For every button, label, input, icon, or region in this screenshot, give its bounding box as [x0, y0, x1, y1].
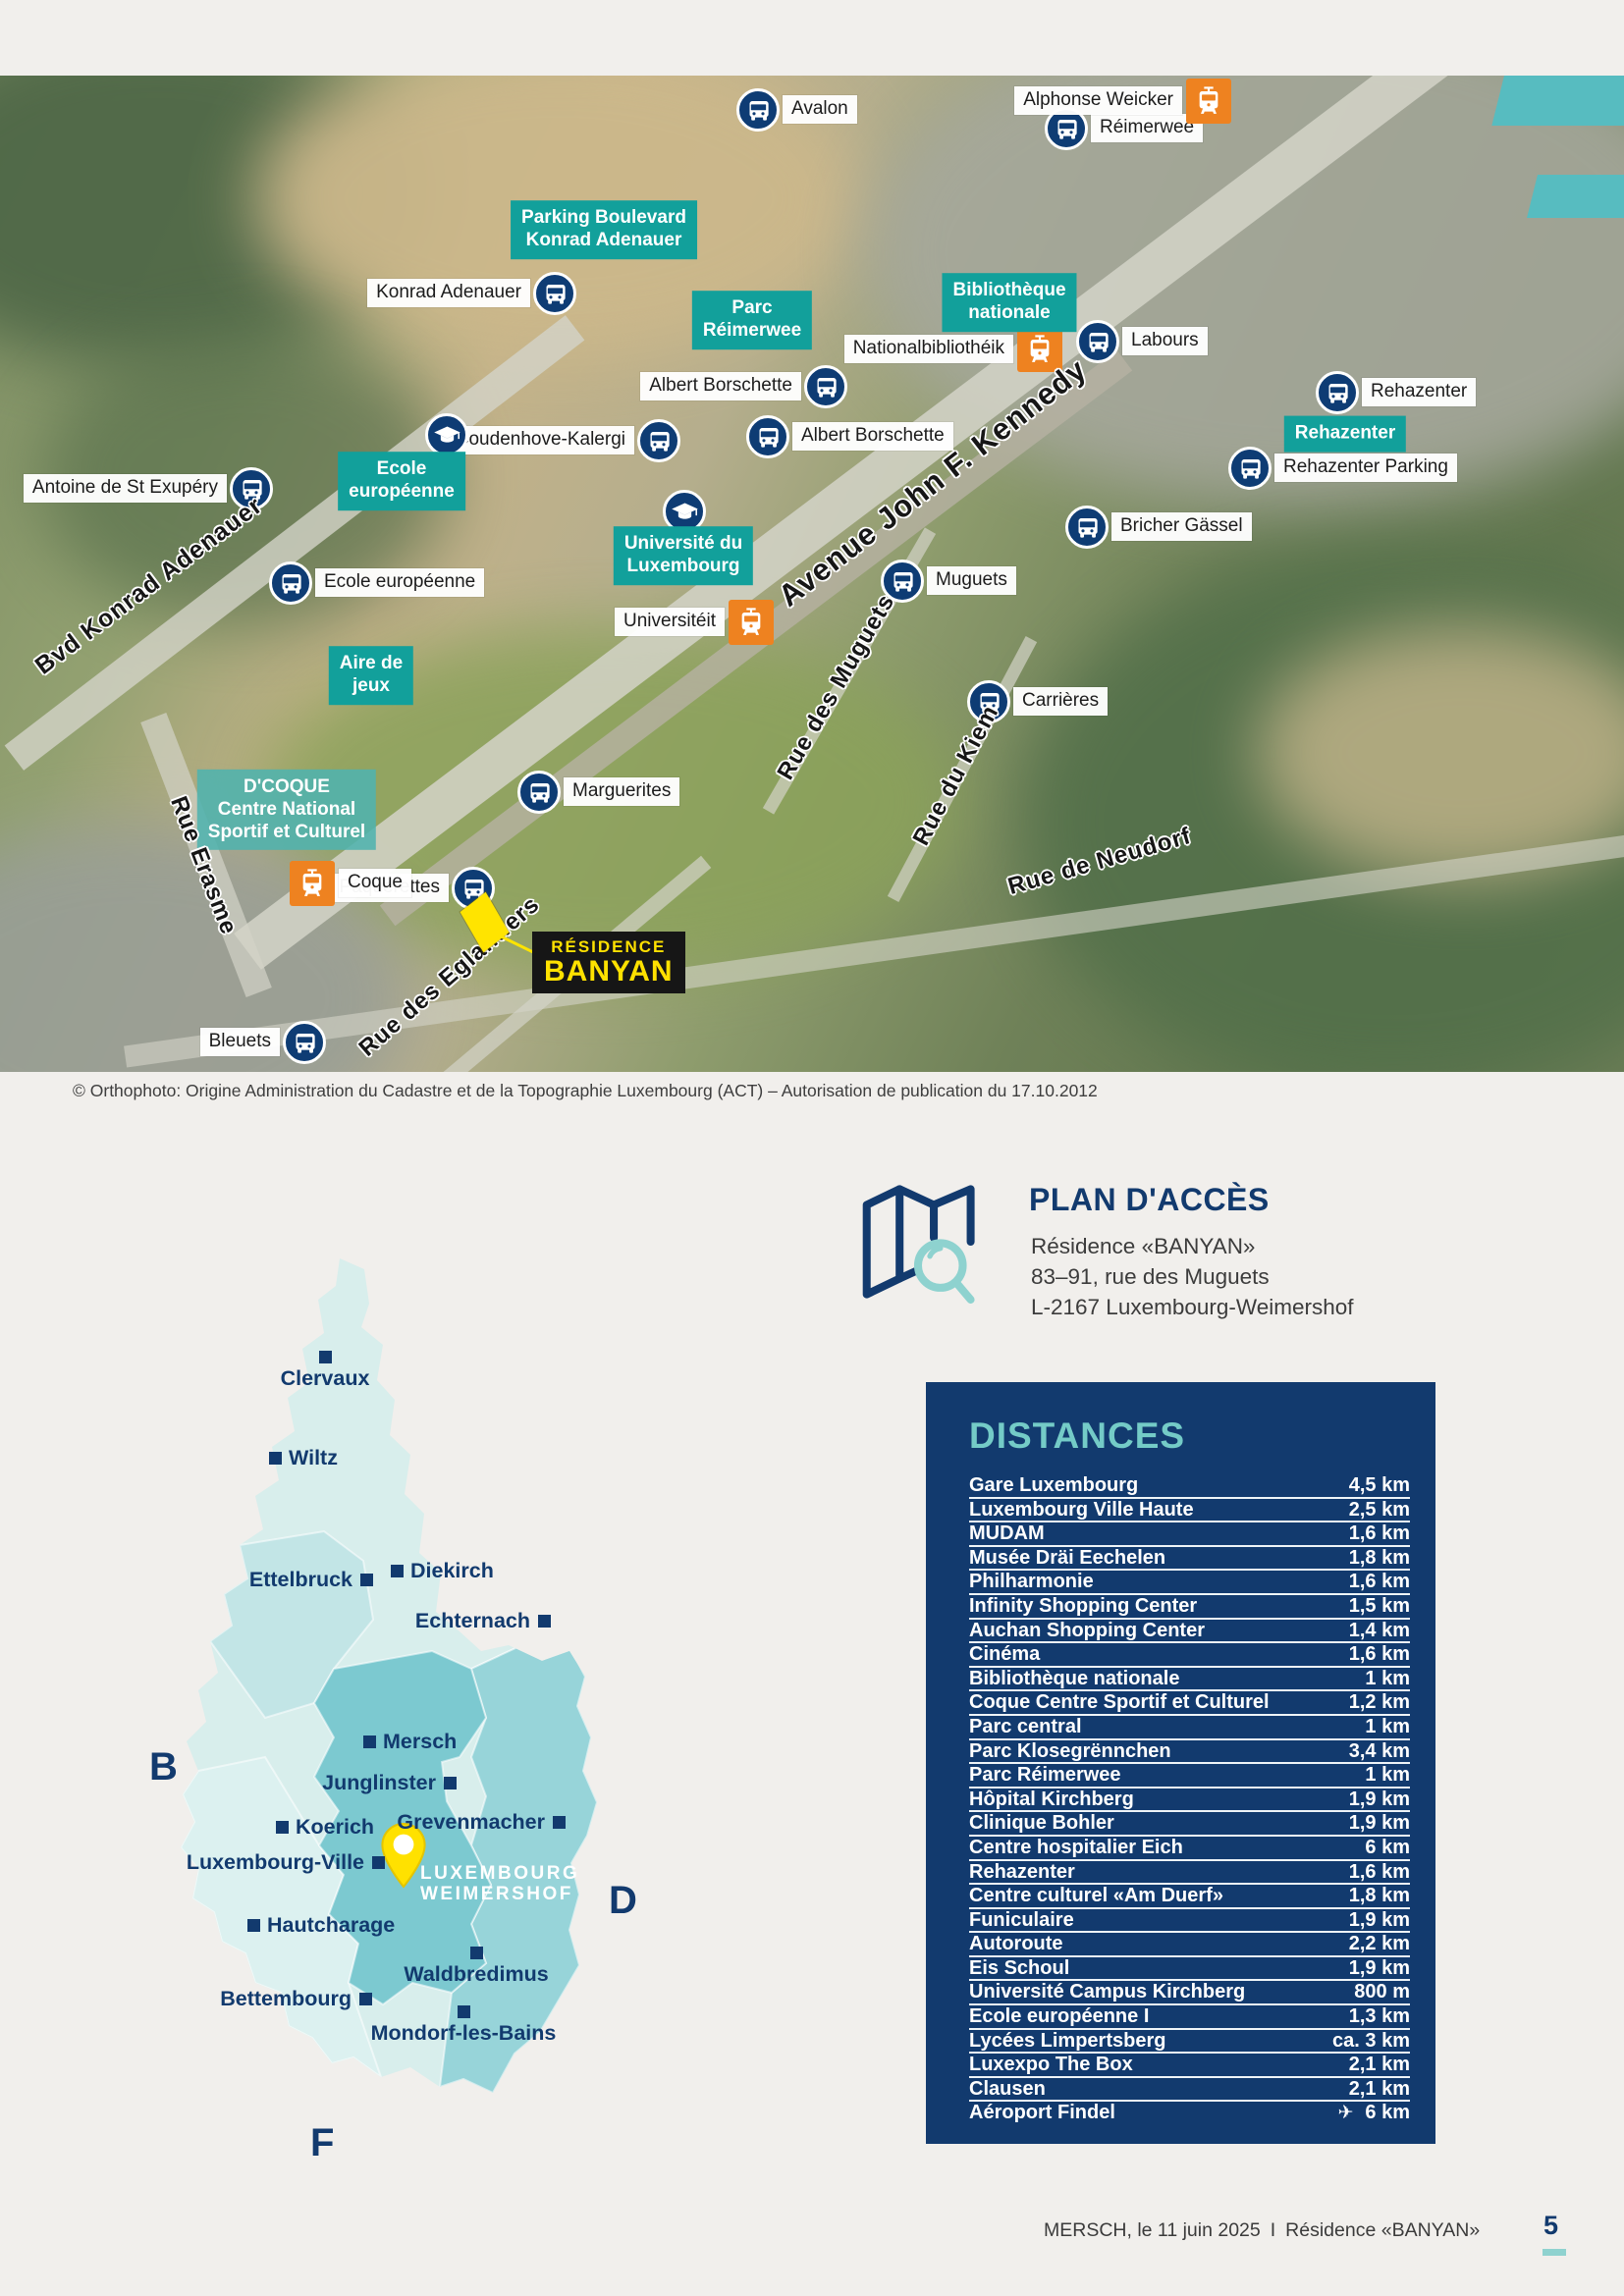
distance-name: Université Campus Kirchberg [969, 1981, 1245, 2003]
distance-row: Funiculaire1,9 km [969, 1909, 1410, 1934]
city-label: Mondorf-les-Bains [371, 2020, 557, 2046]
neighbor-country-letter: B [149, 1745, 178, 1789]
bus-stop-label: Marguerites [564, 777, 679, 806]
address-line-residence: Résidence «BANYAN» [1031, 1231, 1354, 1261]
distance-row: Autoroute2,2 km [969, 1933, 1410, 1957]
edge-decoration-bar [1527, 175, 1624, 218]
distance-name: Parc Klosegrënnchen [969, 1740, 1171, 1763]
distance-value: 4,5 km [1349, 1474, 1410, 1497]
distance-name: Hôpital Kirchberg [969, 1789, 1134, 1811]
distance-row: Lycées Limpertsbergca. 3 km [969, 2030, 1410, 2055]
distance-row: Parc Réimerwee1 km [969, 1764, 1410, 1789]
distance-value: 1,9 km [1349, 1909, 1410, 1932]
city-square-marker [553, 1816, 566, 1829]
distance-name: Philharmonie [969, 1571, 1094, 1593]
distance-value: 1,3 km [1349, 2005, 1410, 2028]
bus-stop-label: Labours [1122, 327, 1208, 355]
distance-row: Auchan Shopping Center1,4 km [969, 1620, 1410, 1644]
city-square-marker [319, 1351, 332, 1363]
folded-map-icon [856, 1176, 988, 1312]
city-square-marker [538, 1615, 551, 1628]
map-info-box: Ecoleeuropéenne [338, 452, 465, 510]
distance-name: Bibliothèque nationale [969, 1668, 1179, 1690]
distance-name: Parc central [969, 1716, 1082, 1738]
distances-title: DISTANCES [969, 1415, 1435, 1457]
distance-row: Université Campus Kirchberg800 m [969, 1981, 1410, 2005]
country-map-overlay: LUXEMBOURG WEIMERSHOF ClervauxWiltzEttel… [147, 1207, 825, 2218]
distance-row: Hôpital Kirchberg1,9 km [969, 1789, 1410, 1813]
bus-stop-icon [746, 415, 789, 458]
bus-stop-label: Konrad Adenauer [367, 279, 530, 307]
distance-row: Rehazenter1,6 km [969, 1861, 1410, 1886]
distance-row: Clinique Bohler1,9 km [969, 1812, 1410, 1837]
city-square-marker [470, 1947, 483, 1959]
city-square-marker [458, 2005, 470, 2018]
neighbor-country-letter: F [310, 2121, 334, 2165]
orthophoto-caption: © Orthophoto: Origine Administration du … [73, 1081, 1098, 1101]
city-square-marker [276, 1821, 289, 1834]
distance-value: 1,9 km [1349, 1957, 1410, 1980]
footer-date: MERSCH, le 11 juin 2025 [1044, 2219, 1261, 2241]
distance-name: Rehazenter [969, 1861, 1075, 1884]
distance-value: 1 km [1365, 1716, 1410, 1738]
street-name-label: Bvd Konrad Adenauer [30, 492, 269, 681]
map-info-box: Parking BoulevardKonrad Adenauer [511, 200, 697, 259]
tram-stop-label: Coque [339, 869, 411, 897]
bus-stop-label: Albert Borschette [792, 422, 953, 451]
brochure-page: AvalonRéimerweeKonrad AdenauerLaboursReh… [0, 0, 1624, 2296]
distance-value: 1,2 km [1349, 1691, 1410, 1714]
city-label: Waldbredimus [404, 1961, 548, 1987]
distance-row: Infinity Shopping Center1,5 km [969, 1595, 1410, 1620]
airplane-icon: ✈ [1337, 2102, 1353, 2124]
bus-stop-icon [283, 1021, 326, 1064]
distance-row: MUDAM1,6 km [969, 1522, 1410, 1547]
bus-stop-icon [1065, 506, 1109, 549]
distance-value: 1,9 km [1349, 1789, 1410, 1811]
distance-name: Luxexpo The Box [969, 2054, 1133, 2076]
distance-value: 1,4 km [1349, 1620, 1410, 1642]
luxembourg-country-map: LUXEMBOURG WEIMERSHOF ClervauxWiltzEttel… [147, 1207, 825, 2218]
footer-title: Résidence «BANYAN» [1285, 2219, 1480, 2241]
bus-stop-label: Coudenhove-Kalergi [447, 426, 634, 454]
distance-value: 1 km [1365, 1764, 1410, 1787]
distance-value: 1,9 km [1349, 1812, 1410, 1835]
distance-value: 2,5 km [1349, 1499, 1410, 1522]
distance-value: 6 km [1365, 1837, 1410, 1859]
city-label: Diekirch [410, 1558, 494, 1583]
distance-row: Cinéma1,6 km [969, 1643, 1410, 1668]
edge-decoration-bar [1491, 76, 1624, 126]
distance-name: Lycées Limpertsberg [969, 2030, 1165, 2053]
tram-stop-label: Nationalbibliothéik [844, 335, 1013, 363]
city-square-marker [247, 1919, 260, 1932]
pin-label-line2: WEIMERSHOF [420, 1884, 579, 1904]
bus-stop-label: Bleuets [200, 1028, 280, 1056]
residence-label-name: BANYAN [544, 957, 674, 987]
distance-value: 1,8 km [1349, 1547, 1410, 1570]
page-number-underline [1543, 2249, 1566, 2256]
map-info-box: Rehazenter [1284, 416, 1406, 453]
page-number: 5 [1543, 2211, 1558, 2241]
city-label: Bettembourg [220, 1986, 352, 2011]
distance-row: Parc central1 km [969, 1716, 1410, 1740]
street-name-label: Rue du Kiem [908, 701, 1005, 850]
city-square-marker [372, 1856, 385, 1869]
distance-row: Philharmonie1,6 km [969, 1571, 1410, 1595]
distance-value: 2,1 km [1349, 2078, 1410, 2101]
map-info-box: ParcRéimerwee [692, 291, 812, 349]
residence-banyan-label: RÉSIDENCE BANYAN [532, 932, 685, 993]
city-label: Koerich [296, 1814, 374, 1840]
distance-value: 1,6 km [1349, 1861, 1410, 1884]
distance-value: ✈6 km [1337, 2102, 1410, 2124]
distance-value: 1,6 km [1349, 1643, 1410, 1666]
bus-stop-label: Antoine de St Exupéry [24, 474, 227, 503]
distance-value: 1 km [1365, 1668, 1410, 1690]
tram-stop-icon [729, 600, 774, 645]
distance-name: Autoroute [969, 1933, 1063, 1955]
distance-row: Musée Dräi Eechelen1,8 km [969, 1547, 1410, 1572]
address-line-city: L-2167 Luxembourg-Weimershof [1031, 1292, 1354, 1322]
street-name-label: Rue des Eglantiers [353, 891, 545, 1063]
distance-name: Auchan Shopping Center [969, 1620, 1205, 1642]
aerial-map: AvalonRéimerweeKonrad AdenauerLaboursReh… [0, 76, 1624, 1072]
distance-row: Gare Luxembourg4,5 km [969, 1474, 1410, 1499]
tram-stop-icon [290, 861, 335, 906]
distance-value: 2,2 km [1349, 1933, 1410, 1955]
city-square-marker [359, 1993, 372, 2005]
bus-stop-icon [1076, 320, 1119, 363]
weimershof-label: LUXEMBOURG WEIMERSHOF [420, 1863, 579, 1904]
distance-name: Centre culturel «Am Duerf» [969, 1885, 1223, 1907]
distance-name: Eis Schoul [969, 1957, 1069, 1980]
city-square-marker [363, 1735, 376, 1748]
access-address: Résidence «BANYAN» 83–91, rue des Muguet… [1031, 1231, 1354, 1322]
distance-name: Clausen [969, 2078, 1046, 2101]
bus-stop-label: Ecole européenne [315, 568, 484, 597]
distance-name: Parc Réimerwee [969, 1764, 1121, 1787]
distances-table: Gare Luxembourg4,5 kmLuxembourg Ville Ha… [926, 1474, 1435, 2126]
distance-row: Clausen2,1 km [969, 2078, 1410, 2103]
distance-value: 1,5 km [1349, 1595, 1410, 1618]
city-square-marker [444, 1777, 457, 1789]
map-info-box: Aire dejeux [329, 646, 413, 705]
map-info-box: Bibliothèquenationale [942, 273, 1076, 332]
distance-row: Bibliothèque nationale1 km [969, 1668, 1410, 1692]
distance-value: 3,4 km [1349, 1740, 1410, 1763]
distance-row: Luxembourg Ville Haute2,5 km [969, 1499, 1410, 1523]
city-label: Hautcharage [267, 1912, 395, 1938]
distance-value: 2,1 km [1349, 2054, 1410, 2076]
bus-stop-label: Avalon [783, 95, 857, 124]
city-square-marker [391, 1565, 404, 1577]
bus-stop-label: Carrières [1013, 687, 1108, 716]
distance-value: 1,8 km [1349, 1885, 1410, 1907]
tram-stop-icon [1186, 79, 1231, 124]
city-label: Mersch [383, 1729, 457, 1754]
pin-label-line1: LUXEMBOURG [420, 1863, 579, 1884]
distances-panel: DISTANCES Gare Luxembourg4,5 kmLuxembour… [926, 1382, 1435, 2144]
distance-value: 1,6 km [1349, 1522, 1410, 1545]
bus-stop-icon [1228, 447, 1272, 490]
city-square-marker [360, 1574, 373, 1586]
bus-stop-label: Bricher Gässel [1111, 512, 1252, 541]
neighbor-country-letter: D [609, 1879, 637, 1923]
city-label: Echternach [415, 1608, 530, 1633]
distance-name: MUDAM [969, 1522, 1045, 1545]
distance-row: Aéroport Findel✈6 km [969, 2102, 1410, 2126]
distance-name: Gare Luxembourg [969, 1474, 1138, 1497]
bus-stop-icon [637, 419, 680, 462]
distance-value: 1,6 km [1349, 1571, 1410, 1593]
distance-name: Clinique Bohler [969, 1812, 1114, 1835]
city-label: Junglinster [322, 1770, 436, 1795]
footer-separator: I [1271, 2219, 1275, 2241]
city-square-marker [269, 1452, 282, 1465]
distance-row: Coque Centre Sportif et Culturel1,2 km [969, 1691, 1410, 1716]
residence-label-top: RÉSIDENCE [544, 937, 674, 957]
distance-name: Ecole européenne I [969, 2005, 1149, 2028]
bus-stop-label: Muguets [927, 566, 1016, 595]
distance-row: Eis Schoul1,9 km [969, 1957, 1410, 1982]
city-label: Grevenmacher [397, 1809, 545, 1835]
map-info-box: D'COQUECentre NationalSportif et Culture… [197, 770, 376, 850]
street-name-label: Rue de Neudorf [1005, 823, 1195, 901]
distance-value: 800 m [1354, 1981, 1410, 2003]
bus-stop-icon [804, 365, 847, 408]
footer-text: MERSCH, le 11 juin 2025IRésidence «BANYA… [1044, 2219, 1480, 2242]
city-label: Ettelbruck [249, 1567, 352, 1592]
bus-stop-icon [736, 88, 780, 132]
address-line-street: 83–91, rue des Muguets [1031, 1261, 1354, 1292]
city-label: Wiltz [289, 1445, 338, 1470]
distance-name: Coque Centre Sportif et Culturel [969, 1691, 1270, 1714]
tram-stop-label: Alphonse Weicker [1014, 86, 1182, 115]
distance-name: Infinity Shopping Center [969, 1595, 1197, 1618]
distance-row: Parc Klosegrënnchen3,4 km [969, 1740, 1410, 1765]
map-info-box: Université duLuxembourg [614, 526, 753, 585]
city-label: Luxembourg-Ville [187, 1849, 364, 1875]
distance-row: Centre culturel «Am Duerf»1,8 km [969, 1885, 1410, 1909]
bus-stop-icon [517, 771, 561, 814]
distance-row: Ecole européenne I1,3 km [969, 2005, 1410, 2030]
street-name-label: Rue des Muguets [772, 589, 900, 784]
bus-stop-icon [1316, 371, 1359, 414]
distance-name: Aéroport Findel [969, 2102, 1115, 2124]
bus-stop-icon [269, 561, 312, 605]
school-stop-icon [425, 413, 468, 456]
map-marker-layer: AvalonRéimerweeKonrad AdenauerLaboursReh… [0, 76, 1624, 1072]
distance-name: Centre hospitalier Eich [969, 1837, 1183, 1859]
distance-value: ca. 3 km [1332, 2030, 1410, 2053]
bus-stop-label: Albert Borschette [640, 372, 801, 400]
distance-name: Cinéma [969, 1643, 1040, 1666]
distance-name: Luxembourg Ville Haute [969, 1499, 1194, 1522]
distance-name: Funiculaire [969, 1909, 1074, 1932]
city-label: Clervaux [281, 1365, 370, 1391]
distance-row: Centre hospitalier Eich6 km [969, 1837, 1410, 1861]
distance-row: Luxexpo The Box2,1 km [969, 2054, 1410, 2078]
bus-stop-icon [533, 272, 576, 315]
bus-stop-label: Rehazenter Parking [1274, 454, 1457, 482]
access-plan-title: PLAN D'ACCÈS [1029, 1182, 1270, 1218]
bus-stop-label: Rehazenter [1362, 378, 1476, 406]
tram-stop-label: Universitéit [615, 608, 725, 636]
distance-name: Musée Dräi Eechelen [969, 1547, 1165, 1570]
